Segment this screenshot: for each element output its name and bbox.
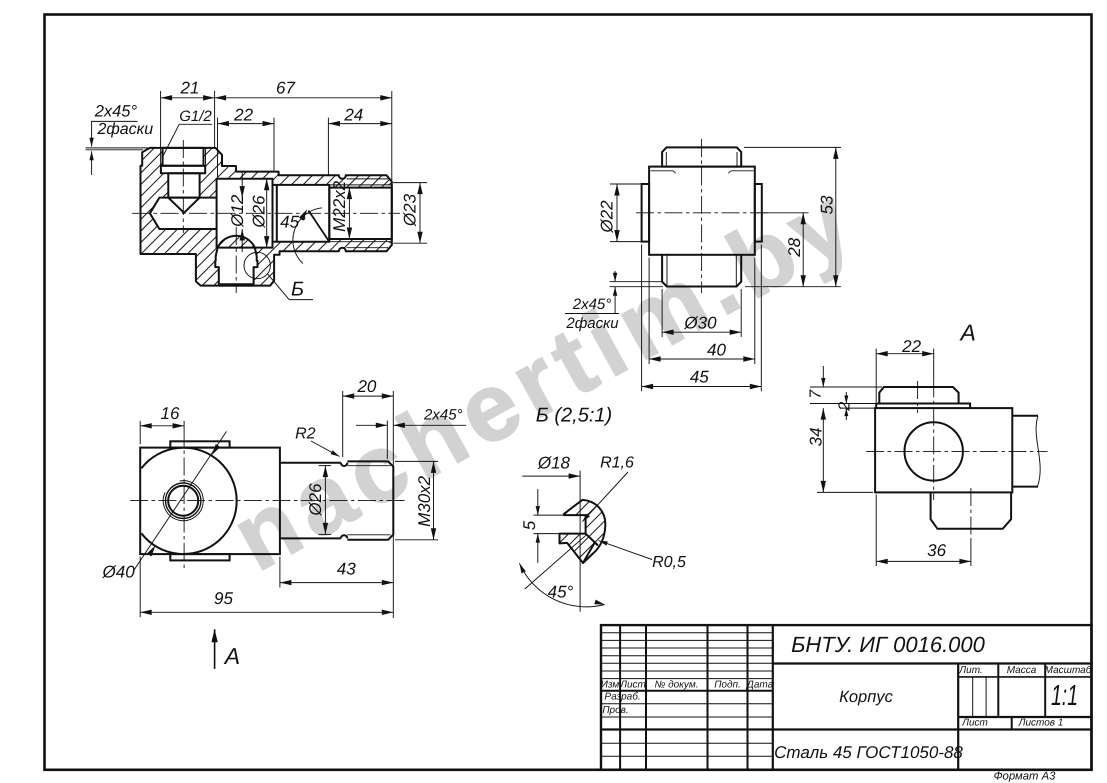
svg-text:22: 22 xyxy=(233,106,253,125)
svg-text:2фаски: 2фаски xyxy=(565,315,619,332)
svg-text:45°: 45° xyxy=(548,583,574,602)
svg-text:2x45°: 2x45° xyxy=(572,296,612,313)
svg-text:21: 21 xyxy=(179,79,199,98)
svg-text:7: 7 xyxy=(808,389,825,399)
svg-text:40: 40 xyxy=(707,340,726,359)
svg-text:2: 2 xyxy=(837,402,854,412)
svg-text:20: 20 xyxy=(356,377,376,396)
svg-text:M30x2: M30x2 xyxy=(415,475,434,527)
svg-text:Разраб.: Разраб. xyxy=(604,692,640,703)
svg-text:Б: Б xyxy=(291,279,304,301)
svg-text:43: 43 xyxy=(337,559,356,578)
svg-text:2фаски: 2фаски xyxy=(96,121,153,138)
svg-text:Ø40: Ø40 xyxy=(102,563,136,582)
svg-text:R2: R2 xyxy=(295,425,316,442)
svg-text:Ø26: Ø26 xyxy=(306,483,325,517)
svg-text:Подп.: Подп. xyxy=(714,679,741,690)
svg-text:Лист: Лист xyxy=(619,679,646,690)
svg-text:Масштаб: Масштаб xyxy=(1045,665,1092,676)
svg-text:36: 36 xyxy=(927,541,946,560)
svg-text:БНТУ. ИГ 0016.000: БНТУ. ИГ 0016.000 xyxy=(791,632,986,657)
svg-text:45: 45 xyxy=(690,368,709,387)
svg-text:28: 28 xyxy=(785,237,804,257)
svg-text:А: А xyxy=(223,643,240,669)
svg-text:M22x2: M22x2 xyxy=(330,180,349,232)
svg-text:53: 53 xyxy=(818,195,837,214)
svg-text:45°: 45° xyxy=(280,213,306,232)
svg-text:67: 67 xyxy=(276,79,295,98)
svg-text:Ø26: Ø26 xyxy=(249,195,268,229)
svg-text:Ø18: Ø18 xyxy=(537,454,571,473)
svg-text:Ø12: Ø12 xyxy=(228,194,247,228)
svg-text:Ø23: Ø23 xyxy=(401,193,420,227)
svg-text:Корпус: Корпус xyxy=(839,688,893,706)
svg-text:А: А xyxy=(959,320,976,346)
svg-text:34: 34 xyxy=(806,427,825,446)
svg-text:Дата: Дата xyxy=(746,679,774,690)
svg-text:2x45°: 2x45° xyxy=(423,406,463,423)
svg-text:Лист: Лист xyxy=(961,718,988,729)
svg-text:Изм: Изм xyxy=(601,679,620,690)
svg-text:Лит.: Лит. xyxy=(958,665,982,676)
svg-text:22: 22 xyxy=(901,337,921,356)
svg-text:№ докум.: № докум. xyxy=(654,679,698,690)
svg-text:Масса: Масса xyxy=(1007,665,1037,676)
svg-text:R0,5: R0,5 xyxy=(652,554,686,571)
svg-text:Формат А3: Формат А3 xyxy=(994,770,1057,782)
svg-text:Ø30: Ø30 xyxy=(683,314,717,333)
svg-text:1:1: 1:1 xyxy=(1051,680,1078,712)
svg-text:2x45°: 2x45° xyxy=(94,102,138,120)
svg-text:95: 95 xyxy=(214,589,233,608)
svg-text:Б (2,5:1): Б (2,5:1) xyxy=(536,405,612,427)
svg-text:Ø22: Ø22 xyxy=(598,200,617,234)
svg-text:5: 5 xyxy=(520,520,539,530)
svg-text:Листов 1: Листов 1 xyxy=(1018,718,1064,729)
svg-text:Пров.: Пров. xyxy=(602,705,628,716)
svg-text:G1/2: G1/2 xyxy=(179,108,212,125)
svg-text:Сталь 45 ГОСТ1050-88: Сталь 45 ГОСТ1050-88 xyxy=(774,743,963,762)
svg-text:24: 24 xyxy=(343,106,363,125)
svg-text:R1,6: R1,6 xyxy=(600,454,634,471)
svg-text:16: 16 xyxy=(161,404,180,423)
